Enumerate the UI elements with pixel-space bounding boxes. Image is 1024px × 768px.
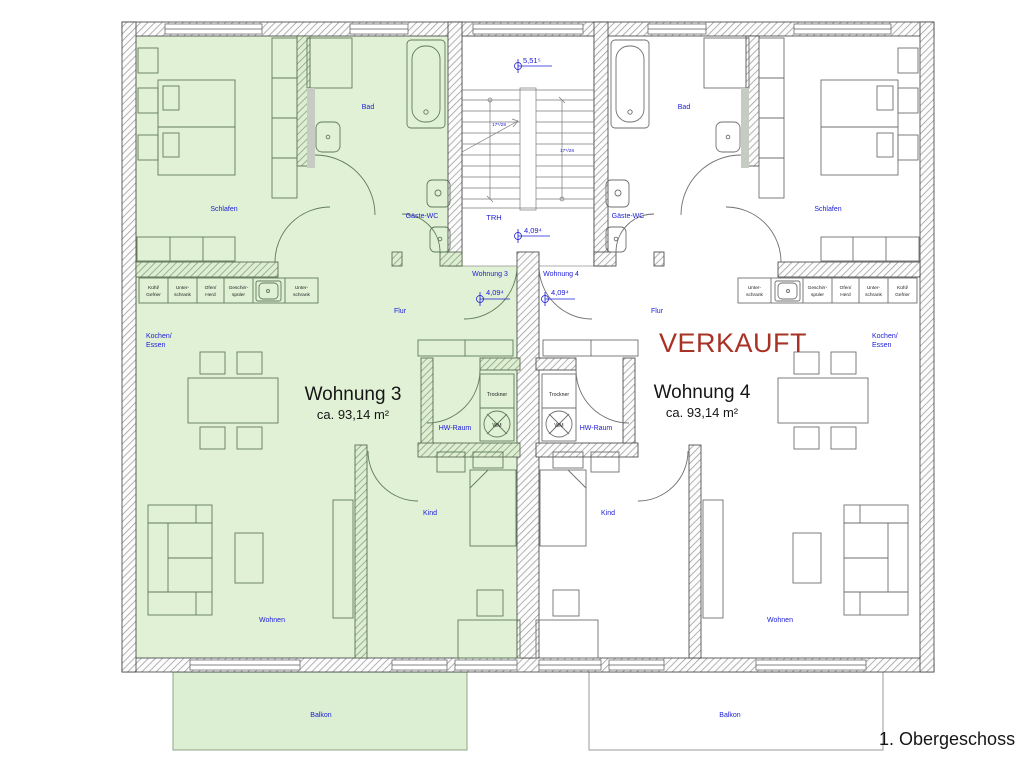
balcony-door [392,660,447,670]
kitchen-cell-label: schrank [746,292,763,298]
wall-w3 [480,358,520,370]
room-label-flur-w3: Flur [394,308,407,315]
room-label-balkon-w3: Balkon [310,712,332,719]
room-label-kochen-w4-line1: Kochen/ [872,333,898,340]
room-label-schlafen-w4: Schlafen [814,206,841,213]
kitchen-cell-label: Geschirr- [808,285,828,291]
window [455,660,517,670]
kitchen-cell-label: Unter- [176,285,190,291]
wall-w4 [778,262,920,277]
balcony-w3 [173,672,467,750]
room-label-bad-w4: Bad [678,104,691,111]
wall-stairwell-right [594,22,608,266]
wall-w4 [536,443,638,457]
room-label-schlafen-w3: Schlafen [210,206,237,213]
wohnung3-title: Wohnung 3 [305,384,402,405]
room-label-hw-raum-w4: HW-Raum [580,425,613,432]
wohnung4-title: Wohnung 4 [654,382,751,403]
room-label-balkon-w4: Balkon [719,712,741,719]
kitchen-cell-label: Kühl/ [897,285,909,291]
wall-w4 [623,358,635,455]
dryer-label-w3: Trockner [487,392,508,398]
wall-w4 [536,358,576,370]
kitchen-cell-label: Kühl/ [148,285,160,291]
room-label-flur-w4: Flur [651,308,664,315]
room-label-wohnen-w3: Wohnen [259,617,285,624]
sold-stamp: VERKAUFT [659,328,807,358]
window [794,24,891,34]
room-label-trh: TRH [486,213,501,222]
level-w4-door: 4,09⁴ [551,288,569,297]
kitchen-cell-label: Ofen/ [205,285,217,291]
kitchen-cell-label: schrank [174,292,191,298]
wall-exterior-right [920,22,934,672]
room-label-wohnen-w4: Wohnen [767,617,793,624]
room-label-kochen-w3-line1: Kochen/ [146,333,172,340]
wall-stairwell-left [448,22,462,266]
level-w3-door: 4,09⁴ [486,288,504,297]
kitchen-cell-label: spüler [232,292,245,298]
washer-label-w3: WM [492,423,501,429]
stair-notation-left: 17⁵/28 [492,122,506,128]
window [190,660,300,670]
kitchen-cell-label: Gefrier [146,292,161,298]
wall-w4 [594,252,616,266]
window [648,24,706,34]
kitchen-cell-label: Herd [840,292,851,298]
kitchen-cell-label: Ofen/ [840,285,852,291]
wohnung4-area: ca. 93,14 m² [666,405,739,420]
window [539,660,601,670]
wall-w3 [418,443,520,457]
kitchen-cell-label: Gefrier [895,292,910,298]
window [165,24,262,34]
window [756,660,866,670]
room-label-kochen-w3-line2: Essen [146,342,166,349]
wall-w3 [440,252,462,266]
room-label-kind-w3: Kind [423,510,437,517]
level-top: 5,51⁵ [523,56,541,65]
dryer-label-w4: Trockner [549,392,570,398]
wall-w4 [689,445,701,658]
floorplan-drawing: Schlafen Schlafen Bad Bad Gäste-WC Gäste… [0,0,1024,768]
floor-label: 1. Obergeschoss [879,729,1015,749]
wall-w3 [392,252,402,266]
wall-w4 [654,252,664,266]
kitchen-cell-label: Unter- [867,285,881,291]
kitchen-cell-label: Geschirr- [229,285,249,291]
kitchen-cell-label: schrank [293,292,310,298]
kitchen-cell-label: schrank [865,292,882,298]
window [473,24,583,34]
wall-w3 [136,262,278,277]
balcony-w4 [589,672,883,750]
kitchen-cell-label: Unter- [295,285,309,291]
kitchen-cell-label: Unter- [748,285,762,291]
wall-w3 [421,358,433,455]
room-label-hw-raum-w3: HW-Raum [439,425,472,432]
kitchen-cell-label: Herd [205,292,216,298]
stair-notation-right: 17⁵/28 [560,148,574,154]
room-label-kind-w4: Kind [601,510,615,517]
balcony-door [609,660,664,670]
wohnung3-area: ca. 93,14 m² [317,407,390,422]
door-label-wohnung3: Wohnung 3 [472,271,508,278]
door-label-wohnung4: Wohnung 4 [543,271,579,278]
washer-label-w4: WM [554,423,563,429]
wall-exterior-left [122,22,136,672]
kitchen-cell-label: spüler [811,292,824,298]
room-label-kochen-w4-line2: Essen [872,342,892,349]
level-landing: 4,09⁴ [524,226,542,235]
room-label-gaeste-wc-w4: Gäste-WC [612,213,645,220]
wall-w3 [355,445,367,658]
room-label-bad-w3: Bad [362,104,375,111]
window [350,24,408,34]
room-label-gaeste-wc-w3: Gäste-WC [406,213,439,220]
floorplan-page: Schlafen Schlafen Bad Bad Gäste-WC Gäste… [0,0,1024,768]
